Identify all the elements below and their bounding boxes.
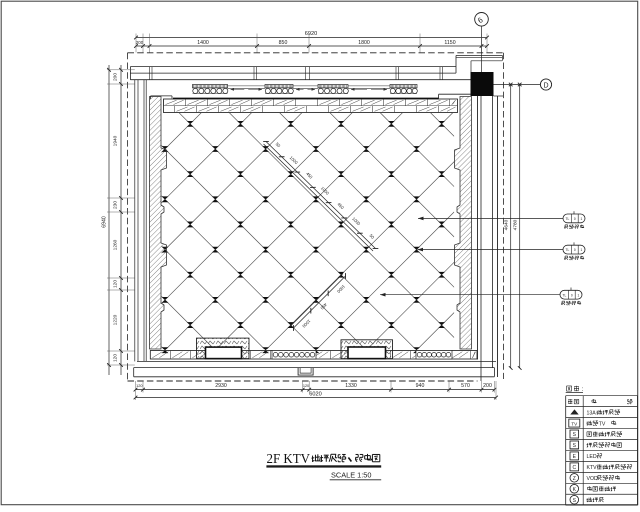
svg-text:D: D <box>543 82 548 89</box>
svg-text:VOD: VOD <box>587 476 598 482</box>
svg-text:6920: 6920 <box>305 31 317 37</box>
svg-text:4640: 4640 <box>504 219 510 230</box>
svg-text:200: 200 <box>113 73 119 81</box>
svg-text:120: 120 <box>113 354 119 362</box>
svg-text:13A: 13A <box>587 410 597 416</box>
svg-text:0: 0 <box>574 248 576 252</box>
svg-text:230: 230 <box>113 201 119 209</box>
svg-text:0: 0 <box>574 217 576 221</box>
svg-text:C: C <box>572 465 576 471</box>
svg-text:1: 1 <box>581 248 583 252</box>
svg-text:1260: 1260 <box>113 239 119 250</box>
svg-text:6020: 6020 <box>309 391 321 397</box>
svg-text:6940: 6940 <box>102 216 108 228</box>
svg-text:570: 570 <box>461 383 470 389</box>
svg-text:2F KTV: 2F KTV <box>267 451 311 466</box>
svg-text:4780: 4780 <box>512 219 518 230</box>
svg-text:1940: 1940 <box>113 135 119 146</box>
svg-text:200: 200 <box>483 383 492 389</box>
svg-text:1330: 1330 <box>345 383 357 389</box>
svg-text:940: 940 <box>416 383 425 389</box>
svg-text:1: 1 <box>581 217 583 221</box>
svg-text:1400: 1400 <box>197 40 209 46</box>
svg-text:TL: TL <box>566 248 570 252</box>
svg-text:SCALE 1:50: SCALE 1:50 <box>331 470 372 479</box>
svg-text:KTV: KTV <box>587 465 598 471</box>
svg-text:200: 200 <box>136 40 144 45</box>
svg-text:LED: LED <box>587 454 597 460</box>
svg-text:1: 1 <box>578 293 580 297</box>
svg-text:2930: 2930 <box>215 383 227 389</box>
svg-text:1800: 1800 <box>358 40 370 46</box>
svg-text:120: 120 <box>136 384 142 388</box>
svg-text:TL: TL <box>566 217 570 221</box>
svg-text:TV: TV <box>599 421 606 427</box>
svg-text:120: 120 <box>113 280 119 288</box>
svg-text:1220: 1220 <box>113 314 119 325</box>
svg-text:TV: TV <box>571 421 578 426</box>
svg-text:TL: TL <box>563 293 567 297</box>
svg-text:0: 0 <box>571 293 573 297</box>
svg-text:1150: 1150 <box>444 40 455 46</box>
svg-text:850: 850 <box>279 40 288 46</box>
svg-text:Z: Z <box>573 476 576 482</box>
svg-text:120: 120 <box>303 384 309 388</box>
